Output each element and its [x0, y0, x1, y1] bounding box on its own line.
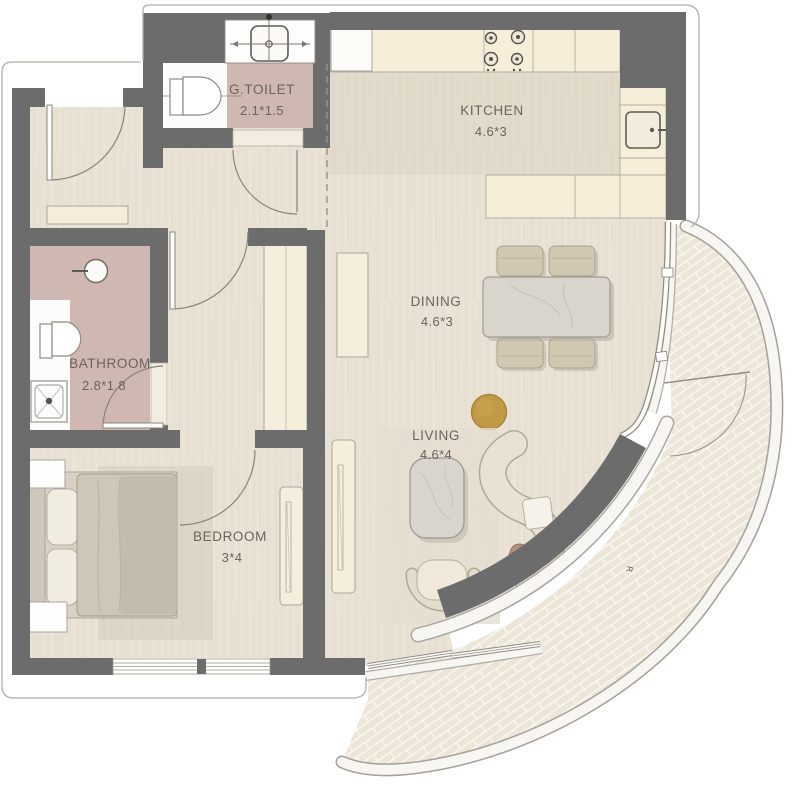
dining-chair — [497, 338, 543, 368]
bedroom-window — [113, 659, 270, 674]
dims-dining: 4.6*3 — [421, 314, 453, 329]
foyer-console — [47, 206, 128, 224]
label-bathroom: BATHROOM — [69, 356, 151, 371]
entry-door-leaf — [47, 105, 52, 180]
tv-console-living — [332, 440, 355, 593]
label-living: LIVING — [412, 428, 460, 443]
dining-chair — [497, 246, 543, 276]
dims-living: 4.6*4 — [420, 447, 452, 462]
window-frame-break — [662, 268, 673, 277]
dining-chair — [549, 338, 595, 368]
gold-side-table — [472, 395, 507, 430]
bathroom-wc-bowl — [52, 322, 81, 356]
kitchen-sink-drain — [650, 128, 654, 132]
dining-chair — [549, 246, 595, 276]
tv-console-bedroom — [280, 487, 303, 605]
label-g-toilet: G.TOILET — [229, 82, 295, 97]
corridor-door-leaf — [170, 232, 175, 309]
kitchen-counter-top — [330, 25, 620, 72]
bathroom-room — [30, 246, 150, 430]
window-frame-break — [655, 351, 667, 361]
coffee-table — [410, 458, 464, 538]
corridor-wardrobe — [264, 237, 307, 431]
nightstand — [29, 602, 67, 632]
nightstand — [29, 460, 65, 488]
dining-cabinet — [337, 253, 368, 357]
dining-set — [483, 246, 614, 371]
g-toilet-washbasin — [251, 26, 288, 61]
kitchen-sink — [626, 112, 660, 148]
floor-plan-drawing: G.TOILET 2.1*1.5 KITCHEN 4.6*3 DINING 4.… — [0, 0, 804, 802]
floor-plan-canvas: G.TOILET 2.1*1.5 KITCHEN 4.6*3 DINING 4.… — [0, 0, 804, 802]
bed-blanket — [120, 476, 177, 614]
dims-g-toilet: 2.1*1.5 — [240, 103, 284, 118]
g-toilet-door-opening — [233, 130, 303, 146]
bathroom-shower-drain — [46, 398, 52, 404]
bed-pillow — [47, 549, 78, 605]
bed-pillow — [47, 489, 78, 545]
label-kitchen: KITCHEN — [460, 103, 523, 118]
dims-bedroom: 3*4 — [222, 550, 243, 565]
label-dining: DINING — [411, 294, 462, 309]
g-toilet-wc-tank — [170, 79, 183, 115]
kitchen-counter-bottom — [486, 175, 666, 218]
bathroom-door-opening — [151, 363, 167, 425]
dining-table — [483, 277, 610, 337]
kitchen-floor — [325, 72, 620, 175]
g-toilet-washbasin-niche — [225, 14, 315, 63]
dims-bathroom: 2.8*1.8 — [82, 378, 126, 393]
label-bedroom: BEDROOM — [193, 529, 267, 544]
bathroom-door-leaf — [103, 423, 163, 428]
dims-kitchen: 4.6*3 — [475, 124, 507, 139]
bathroom-wc-tank — [40, 324, 52, 358]
g-toilet-wc-bowl — [183, 77, 221, 115]
kitchen-fridge — [331, 27, 372, 71]
